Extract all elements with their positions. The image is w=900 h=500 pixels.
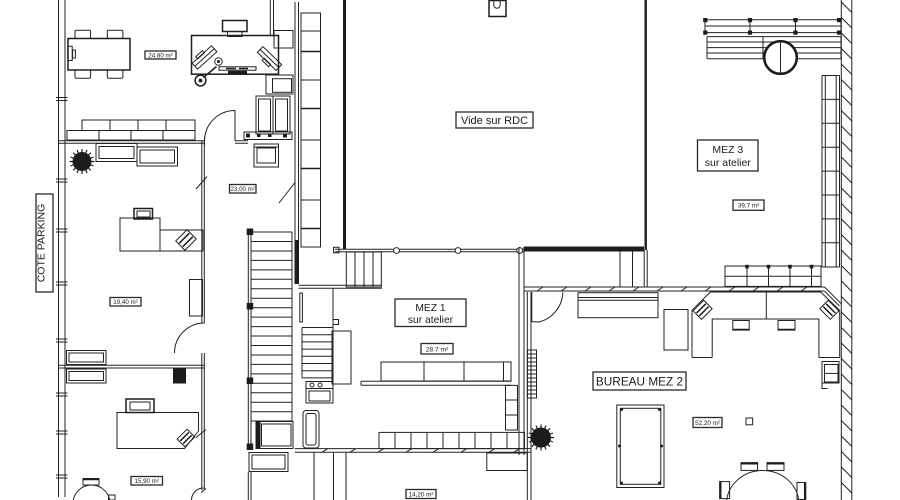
svg-text:24.80 m²: 24.80 m² — [148, 52, 172, 59]
svg-text:15,90 m²: 15,90 m² — [134, 478, 158, 485]
svg-text:MEZ 1: MEZ 1 — [415, 303, 446, 314]
svg-text:39,7 m²: 39,7 m² — [738, 203, 759, 210]
svg-text:sur atelier: sur atelier — [705, 157, 752, 169]
svg-text:BUREAU MEZ 2: BUREAU MEZ 2 — [596, 375, 683, 389]
svg-text:14,20 m²: 14,20 m² — [409, 492, 434, 499]
svg-text:23,00 m²: 23,00 m² — [230, 186, 254, 193]
svg-text:28.7 m²: 28.7 m² — [426, 346, 449, 353]
svg-text:19,40 m²: 19,40 m² — [113, 299, 137, 306]
svg-text:MEZ 3: MEZ 3 — [712, 144, 743, 156]
svg-text:COTE PARKING: COTE PARKING — [36, 204, 48, 283]
svg-text:sur atelier: sur atelier — [408, 315, 454, 326]
svg-text:52,20 m²: 52,20 m² — [695, 420, 720, 427]
svg-text:Vide sur RDC: Vide sur RDC — [461, 115, 528, 127]
